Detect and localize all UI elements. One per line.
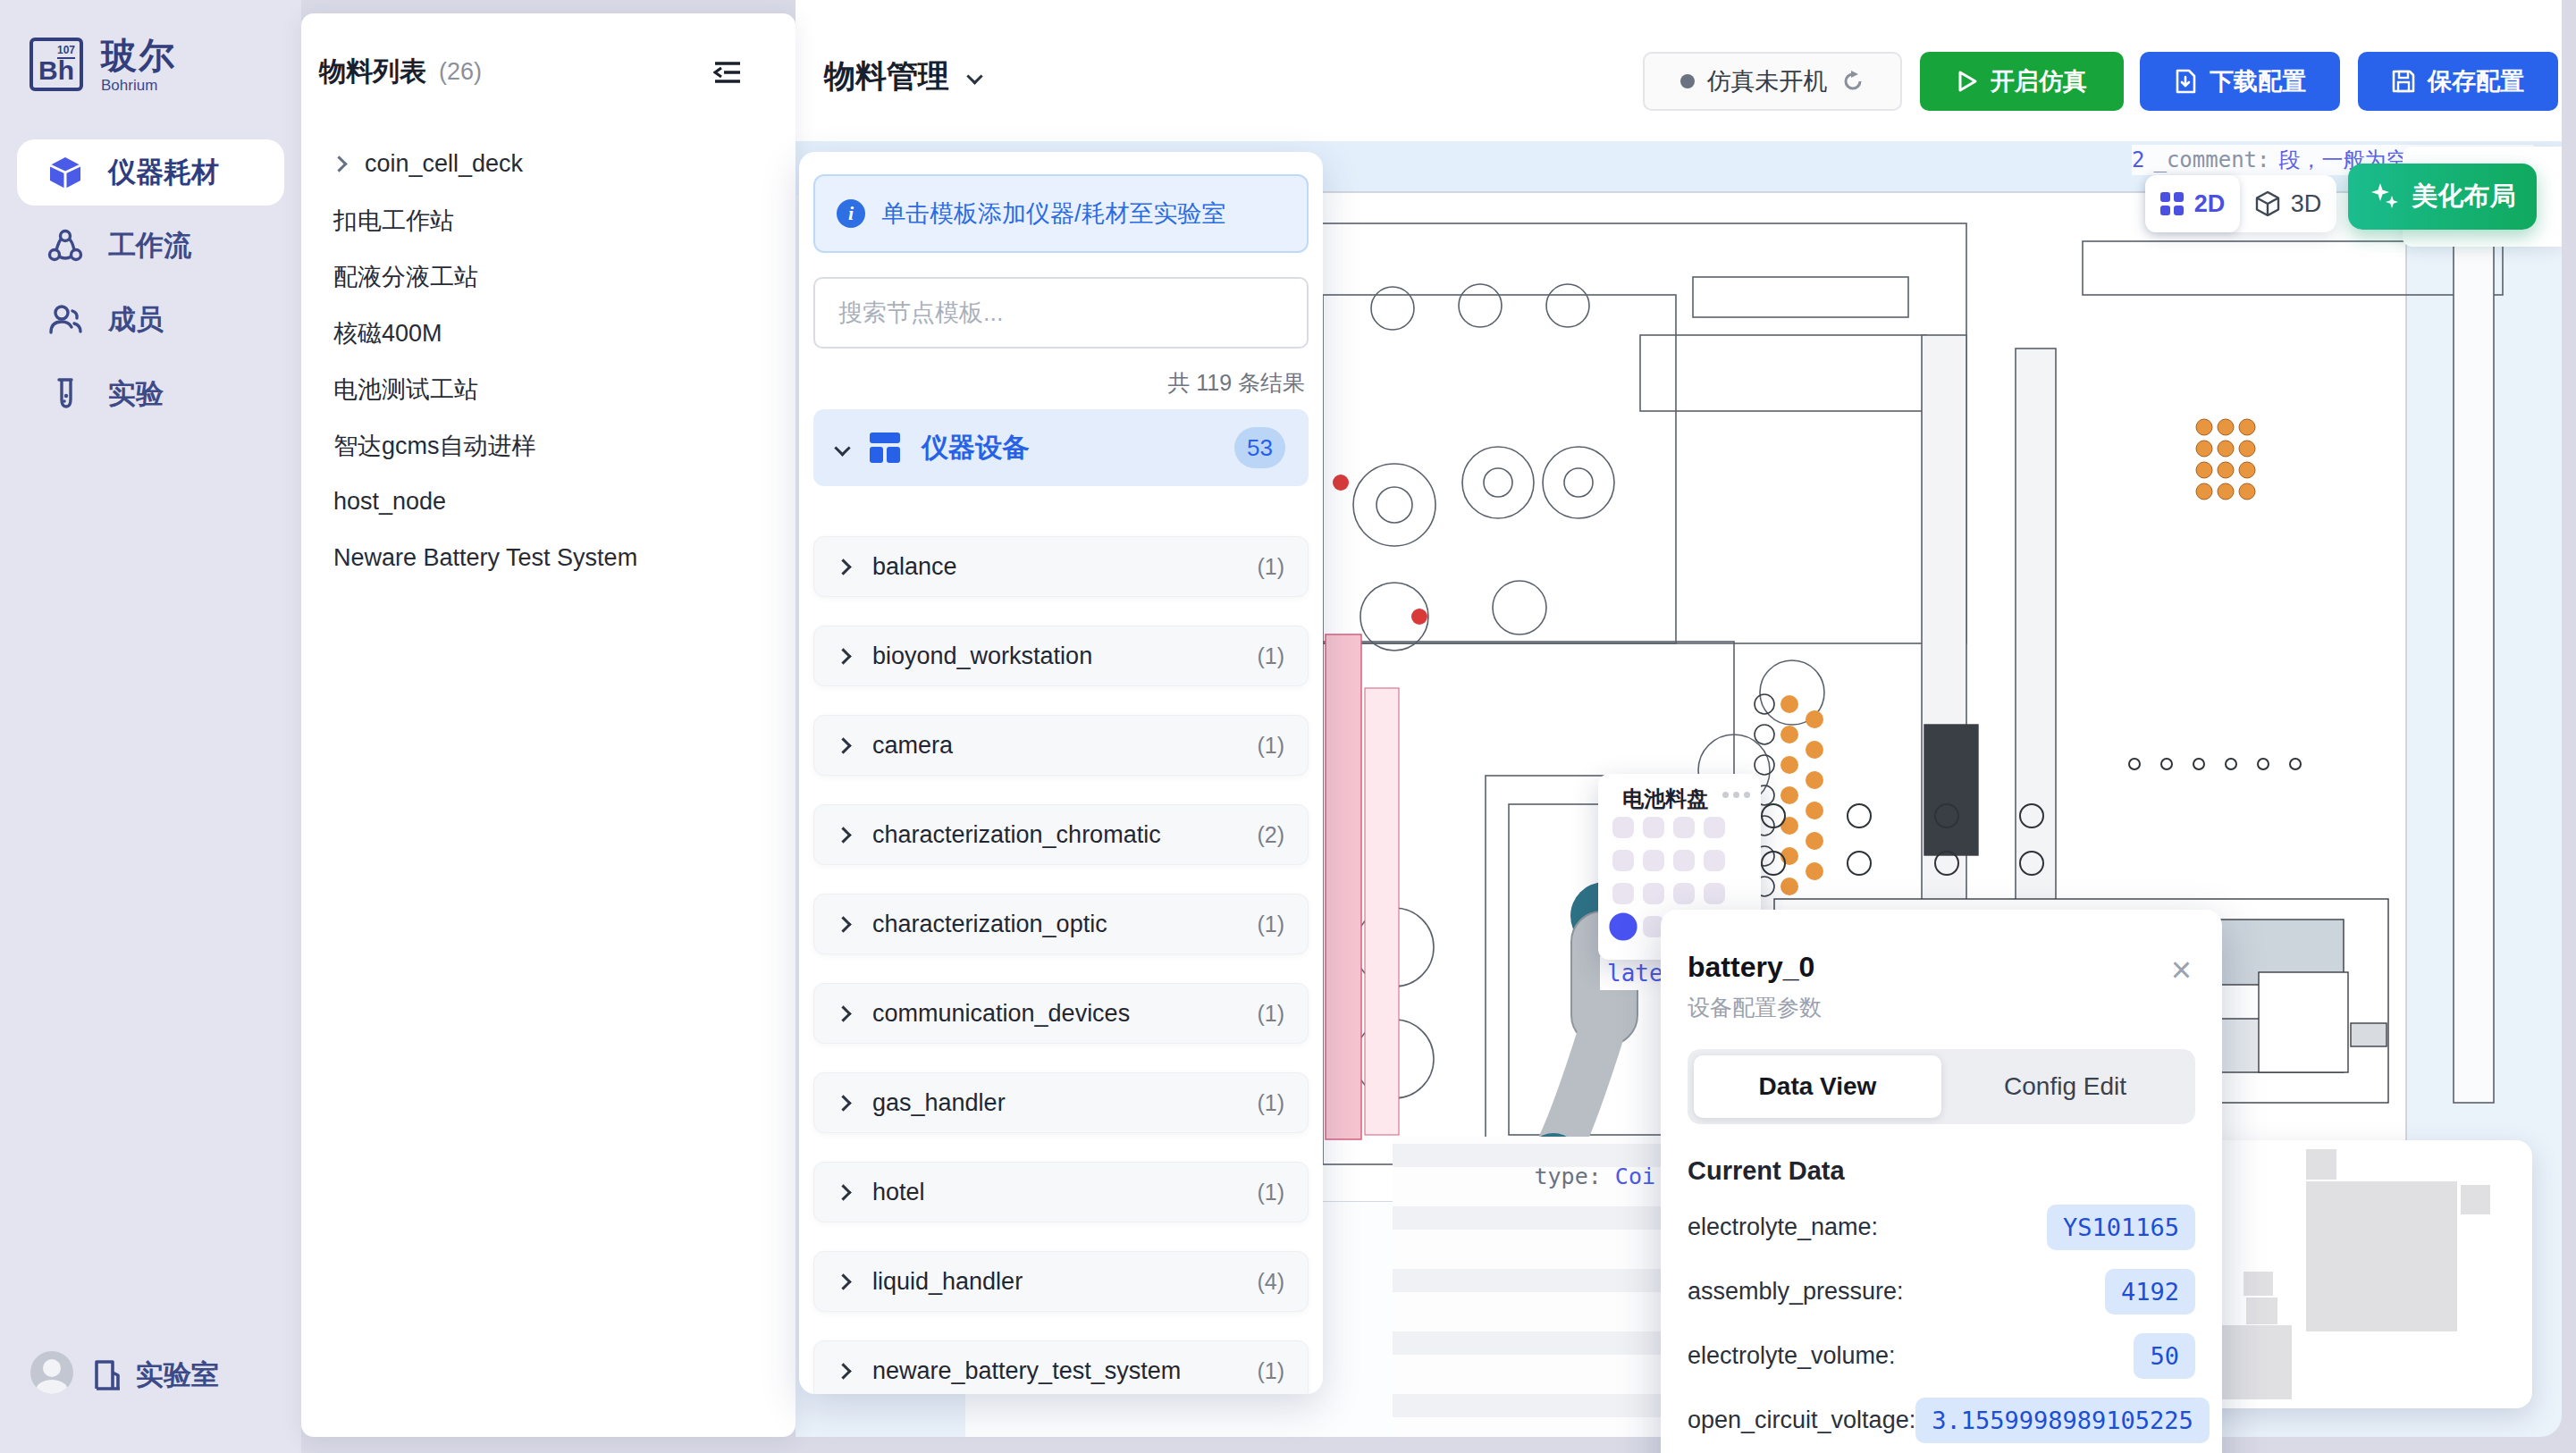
beautify-layout-button[interactable]: 美化布局 bbox=[2348, 164, 2537, 230]
result-count: 共 119 条结果 bbox=[1167, 368, 1305, 398]
app-root: 107 Bh 玻尔 Bohrium 仪器耗材 工作流 bbox=[0, 0, 2576, 1453]
property-strip-panel: type: Coi bbox=[1393, 1137, 1664, 1437]
material-item[interactable]: Neware Battery Test System bbox=[333, 530, 780, 586]
close-icon[interactable]: × bbox=[2171, 956, 2192, 983]
chevron-right-icon bbox=[835, 648, 851, 664]
battery-config-popup: battery_0 设备配置参数 × Data View Config Edit… bbox=[1661, 910, 2222, 1453]
popup-title: battery_0 bbox=[1688, 951, 2195, 984]
brand-logo: 107 Bh 玻尔 Bohrium bbox=[29, 38, 176, 95]
chevron-right-icon[interactable] bbox=[331, 155, 347, 172]
material-list: coin_cell_deck 扣电工作站 配液分液工站 核磁400M 电池测试工… bbox=[333, 136, 780, 586]
avatar[interactable] bbox=[30, 1351, 73, 1394]
plate-label-fragment: late bbox=[1600, 956, 1671, 990]
sidebar-item-label: 实验 bbox=[108, 375, 164, 413]
material-item[interactable]: host_node bbox=[333, 474, 780, 530]
sidebar-footer-label: 实验室 bbox=[136, 1356, 219, 1394]
save-icon bbox=[2392, 70, 2415, 93]
brand-title: 玻尔 bbox=[101, 38, 176, 73]
sidebar-item-instruments[interactable]: 仪器耗材 bbox=[17, 139, 284, 206]
download-file-icon bbox=[2174, 69, 2197, 94]
chevron-right-icon bbox=[835, 1273, 851, 1289]
test-tube-icon bbox=[47, 376, 83, 412]
bohrium-logo-icon: 107 Bh bbox=[29, 38, 83, 91]
material-item[interactable]: 核磁400M bbox=[333, 305, 780, 361]
chevron-right-icon bbox=[835, 1184, 851, 1200]
template-hint-text: 单击模板添加仪器/耗材至实验室 bbox=[881, 197, 1226, 230]
download-config-button[interactable]: 下载配置 bbox=[2140, 52, 2340, 111]
workflow-icon bbox=[47, 228, 83, 264]
section-title: Current Data bbox=[1688, 1156, 2195, 1186]
search-input[interactable] bbox=[813, 277, 1309, 349]
template-item-characterization-optic[interactable]: characterization_optic(1) bbox=[813, 894, 1309, 954]
template-item-camera[interactable]: camera(1) bbox=[813, 715, 1309, 776]
start-simulation-button[interactable]: 开启仿真 bbox=[1920, 52, 2124, 111]
tab-data-view[interactable]: Data View bbox=[1694, 1055, 1941, 1118]
material-item[interactable]: 配液分液工站 bbox=[333, 248, 780, 305]
template-item-communication-devices[interactable]: communication_devices(1) bbox=[813, 983, 1309, 1044]
template-item-bioyond-workstation[interactable]: bioyond_workstation(1) bbox=[813, 626, 1309, 686]
building-icon bbox=[93, 1358, 123, 1392]
chevron-right-icon bbox=[835, 1005, 851, 1021]
value-badge: 3.1559998989105225 bbox=[1915, 1398, 2210, 1443]
sidebar-item-members[interactable]: 成员 bbox=[17, 287, 284, 353]
chevron-down-icon bbox=[966, 68, 982, 84]
chevron-down-icon bbox=[834, 440, 850, 456]
template-item-characterization-chromatic[interactable]: characterization_chromatic(2) bbox=[813, 804, 1309, 865]
category-instruments[interactable]: 仪器设备 53 bbox=[813, 409, 1309, 486]
data-row: open_circuit_voltage: 3.1559998989105225 bbox=[1688, 1388, 2195, 1452]
chevron-right-icon bbox=[835, 1363, 851, 1379]
chevron-right-icon bbox=[835, 827, 851, 843]
material-list-header: 物料列表 (26) bbox=[319, 54, 778, 90]
toggle-3d-button[interactable]: 3D bbox=[2240, 190, 2336, 218]
play-icon bbox=[1957, 70, 1978, 93]
refresh-icon[interactable] bbox=[1840, 69, 1865, 94]
category-count-badge: 53 bbox=[1234, 427, 1285, 468]
info-icon: i bbox=[837, 199, 865, 228]
sidebar-item-label: 仪器耗材 bbox=[108, 154, 219, 191]
material-item[interactable]: 智达gcms自动进样 bbox=[333, 417, 780, 474]
data-row: assembly_pressure: 4192 bbox=[1688, 1259, 2195, 1323]
sidebar: 107 Bh 玻尔 Bohrium 仪器耗材 工作流 bbox=[0, 0, 301, 1453]
chevron-right-icon bbox=[835, 916, 851, 932]
template-item-neware-battery-test-system[interactable]: neware_battery_test_system(1) bbox=[813, 1340, 1309, 1394]
material-item-expandable[interactable]: coin_cell_deck bbox=[333, 136, 780, 192]
value-badge: 4192 bbox=[2105, 1269, 2195, 1314]
cube-3d-icon bbox=[2255, 190, 2280, 217]
material-item[interactable]: 电池测试工站 bbox=[333, 361, 780, 417]
toggle-2d-button[interactable]: 2D bbox=[2145, 175, 2240, 232]
status-dot-icon bbox=[1680, 74, 1695, 88]
data-row: electrolyte_volume: 50 bbox=[1688, 1323, 2195, 1388]
category-label: 仪器设备 bbox=[922, 430, 1029, 466]
simulation-status-pill[interactable]: 仿真未开机 bbox=[1643, 52, 1902, 111]
template-item-balance[interactable]: balance(1) bbox=[813, 536, 1309, 597]
sidebar-item-laboratory[interactable]: 实验室 bbox=[93, 1356, 219, 1394]
popup-subtitle: 设备配置参数 bbox=[1688, 993, 2195, 1022]
save-config-button[interactable]: 保存配置 bbox=[2358, 52, 2558, 111]
material-list-title: 物料列表 bbox=[319, 54, 426, 90]
page-title: 物料管理 bbox=[824, 55, 949, 97]
material-item[interactable]: 扣电工作站 bbox=[333, 192, 780, 248]
grid-2d-icon bbox=[2160, 192, 2184, 215]
tab-config-edit[interactable]: Config Edit bbox=[1941, 1055, 2189, 1118]
cube-icon bbox=[47, 155, 83, 190]
template-item-gas-handler[interactable]: gas_handler(1) bbox=[813, 1072, 1309, 1133]
tray-title: 电池料盘 bbox=[1598, 785, 1732, 813]
brand-subtitle: Bohrium bbox=[101, 77, 176, 95]
members-icon bbox=[47, 302, 83, 338]
data-row: electrolyte_name: YS101165 bbox=[1688, 1195, 2195, 1259]
minimap[interactable] bbox=[2194, 1140, 2532, 1408]
more-menu-icon[interactable] bbox=[1722, 792, 1750, 798]
sidebar-item-label: 成员 bbox=[108, 301, 164, 339]
selected-slot[interactable] bbox=[1609, 912, 1637, 940]
value-badge: YS101165 bbox=[2047, 1205, 2195, 1250]
status-label: 仿真未开机 bbox=[1707, 65, 1828, 97]
material-list-count: (26) bbox=[439, 58, 482, 86]
sparkles-icon bbox=[2370, 181, 2400, 212]
chevron-right-icon bbox=[835, 1095, 851, 1111]
popup-tabs: Data View Config Edit bbox=[1688, 1049, 2195, 1124]
template-hint-banner: i 单击模板添加仪器/耗材至实验室 bbox=[813, 174, 1309, 253]
chevron-right-icon bbox=[835, 559, 851, 575]
sidebar-item-experiments[interactable]: 实验 bbox=[17, 361, 284, 427]
template-item-liquid-handler[interactable]: liquid_handler(4) bbox=[813, 1251, 1309, 1312]
category-grid-icon bbox=[870, 433, 900, 463]
template-item-hotel[interactable]: hotel(1) bbox=[813, 1162, 1309, 1222]
sidebar-item-label: 工作流 bbox=[108, 227, 191, 265]
type-property: type: Coi bbox=[1535, 1163, 1655, 1189]
chevron-right-icon bbox=[835, 737, 851, 753]
sidebar-item-workflow[interactable]: 工作流 bbox=[17, 213, 284, 279]
value-badge: 50 bbox=[2134, 1333, 2195, 1379]
template-panel: i 单击模板添加仪器/耗材至实验室 共 119 条结果 仪器设备 53 bala… bbox=[799, 152, 1323, 1394]
collapse-panel-icon[interactable] bbox=[713, 60, 742, 85]
page-title-row[interactable]: 物料管理 bbox=[824, 55, 981, 97]
view-mode-toggle: 2D 3D bbox=[2145, 175, 2336, 232]
